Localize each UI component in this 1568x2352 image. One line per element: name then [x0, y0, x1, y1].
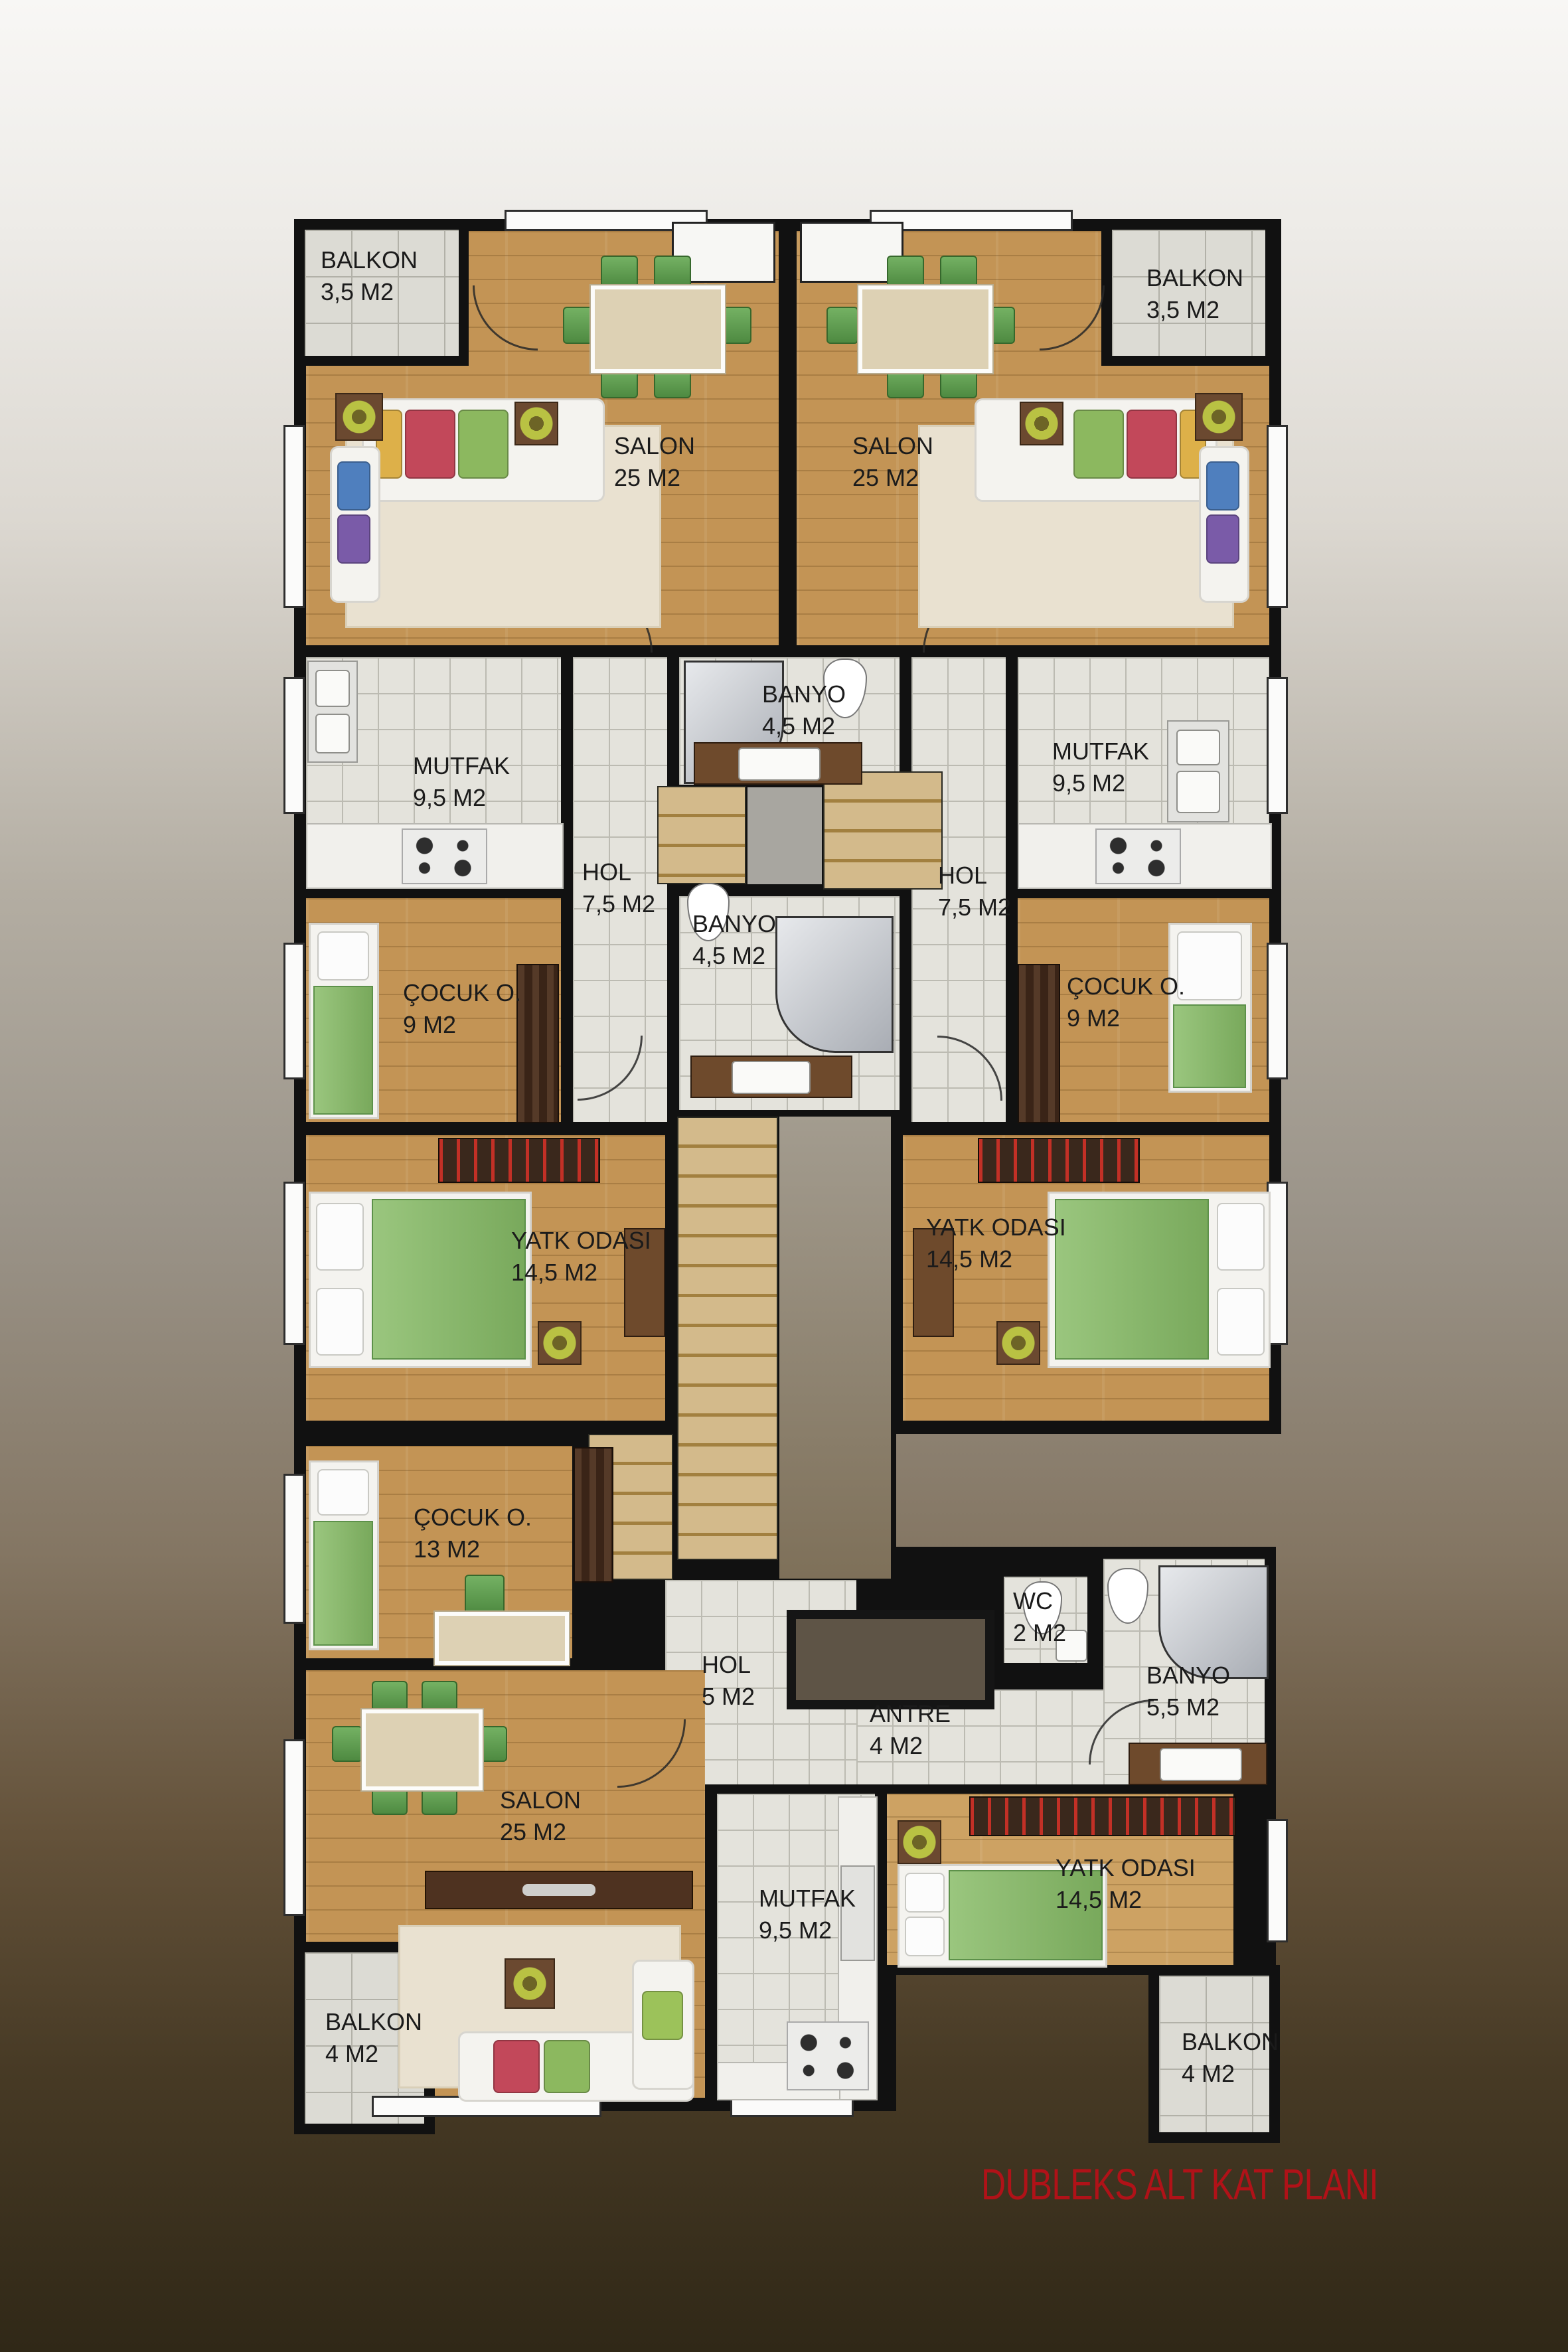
bed-pillow [316, 1288, 364, 1356]
wardrobe [574, 1447, 613, 1583]
room-label-hol-left: HOL 7,5 M2 [582, 856, 655, 919]
room-name: MUTFAK [759, 1883, 856, 1915]
wardrobe [516, 964, 559, 1123]
room-label-antre: ANTRE 4 M2 [870, 1698, 951, 1761]
room-area: 25 M2 [852, 462, 933, 494]
tv-console [425, 1871, 693, 1909]
wardrobe-hangers [438, 1138, 600, 1183]
single-bed [309, 923, 379, 1119]
room-name: ÇOCUK O. [403, 977, 521, 1009]
stove [402, 828, 487, 884]
room-name: BANYO [762, 678, 846, 710]
sofa-cushion [493, 2040, 540, 2093]
room-area: 9 M2 [1067, 1002, 1185, 1034]
room-label-banyo-top: BANYO 4,5 M2 [762, 678, 846, 742]
bed-pillow [1217, 1203, 1265, 1271]
window [283, 1182, 305, 1345]
side-table [1020, 402, 1063, 445]
sofa-cushion [1073, 410, 1124, 479]
room-area: 9,5 M2 [1052, 767, 1149, 799]
side-table [335, 393, 383, 441]
room-name: ÇOCUK O. [1067, 971, 1185, 1002]
dining-chair [563, 307, 595, 344]
room-area: 25 M2 [614, 462, 695, 494]
sofa-cushion [642, 1991, 683, 2040]
room-area: 4,5 M2 [762, 710, 846, 742]
dining-chair [332, 1726, 362, 1762]
sink-basin [1176, 771, 1220, 813]
bed-blanket [313, 1521, 373, 1646]
room-area: 4 M2 [870, 1730, 951, 1762]
room-label-cocuk-left: ÇOCUK O. 9 M2 [403, 977, 521, 1040]
bathroom-vanity [1129, 1743, 1267, 1785]
elevator-shaft [787, 1610, 994, 1709]
wardrobe [1018, 964, 1060, 1123]
double-bed [309, 1192, 532, 1368]
room-area: 4,5 M2 [692, 940, 776, 972]
bed-pillow [905, 1917, 945, 1956]
side-table [514, 402, 558, 445]
sink-basin [1176, 730, 1220, 765]
room-label-salon-top-left: SALON 25 M2 [614, 430, 695, 493]
room-area: 13 M2 [414, 1533, 532, 1565]
sofa-cushion [1206, 514, 1239, 564]
stove [787, 2021, 869, 2090]
room-name: SALON [614, 430, 695, 462]
room-name: ANTRE [870, 1698, 951, 1730]
room-label-banyo-55: BANYO 5,5 M2 [1146, 1660, 1230, 1723]
side-table [505, 1958, 555, 2009]
sofa-cushion [1206, 461, 1239, 510]
window [1267, 677, 1288, 814]
nightstand [996, 1321, 1040, 1365]
shower [775, 916, 894, 1053]
main-staircase [677, 1117, 778, 1560]
room-area: 3,5 M2 [1146, 294, 1243, 326]
dining-table [858, 285, 992, 373]
dining-chair [422, 1681, 457, 1711]
stair-landing [747, 787, 822, 884]
room-label-hol-5: HOL 5 M2 [702, 1649, 755, 1712]
room-name: ÇOCUK O. [414, 1502, 532, 1533]
sofa-cushion [405, 410, 455, 479]
sofa [975, 398, 1217, 502]
room-label-banyo-mid: BANYO 4,5 M2 [692, 908, 776, 971]
sofa-cushion [337, 461, 370, 510]
bathroom-vanity [690, 1056, 852, 1098]
room-label-balkon-bottom-left: BALKON 4 M2 [325, 2006, 422, 2069]
sofa-cushion [544, 2040, 590, 2093]
room-area: 5 M2 [702, 1681, 755, 1713]
room-area: 7,5 M2 [938, 892, 1011, 923]
sink-basin [738, 747, 821, 781]
nightstand [898, 1820, 941, 1864]
bed-blanket [313, 986, 373, 1115]
floor-plan-page: { "title": {"text": "DUBLEKS ALT KAT PLA… [0, 0, 1568, 2352]
room-area: 9,5 M2 [413, 782, 510, 814]
bed-blanket [1055, 1199, 1209, 1360]
room-label-cocuk-right: ÇOCUK O. 9 M2 [1067, 971, 1185, 1034]
bed-pillow [1217, 1288, 1265, 1356]
dining-table [362, 1709, 483, 1790]
upper-stair-right [823, 771, 943, 890]
room-label-mutfak-bottom: MUTFAK 9,5 M2 [759, 1883, 856, 1946]
sofa-cushion [337, 514, 370, 564]
room-area: 7,5 M2 [582, 888, 655, 920]
room-name: BALKON [1182, 2026, 1279, 2058]
tv-set [522, 1884, 595, 1896]
window [1267, 943, 1288, 1079]
room-label-balkon-bottom-right: BALKON 4 M2 [1182, 2026, 1279, 2089]
room-label-wc: WC 2 M2 [1013, 1585, 1066, 1648]
room-name: MUTFAK [1052, 736, 1149, 767]
room-label-yatak-left: YATK ODASI 14,5 M2 [511, 1225, 651, 1288]
window [1267, 1819, 1288, 1942]
room-name: SALON [500, 1784, 581, 1816]
room-name: MUTFAK [413, 750, 510, 782]
stove [1095, 828, 1181, 884]
room-name: BALKON [325, 2006, 422, 2038]
window [283, 1474, 305, 1624]
room-label-mutfak-left: MUTFAK 9,5 M2 [413, 750, 510, 813]
sofa [362, 398, 605, 502]
stair-void [779, 1117, 891, 1579]
dining-chair [887, 256, 924, 287]
sofa-cushion [1127, 410, 1177, 479]
wardrobe-hangers [969, 1796, 1236, 1836]
bed-pillow [317, 1469, 369, 1516]
room-area: 3,5 M2 [321, 276, 418, 308]
upper-stair-left [657, 786, 746, 884]
room-label-hol-right: HOL 7,5 M2 [938, 860, 1011, 923]
room-area: 2 M2 [1013, 1617, 1066, 1649]
room-name: HOL [702, 1649, 755, 1681]
window [1267, 425, 1288, 608]
dining-chair [372, 1681, 408, 1711]
plan-title: DUBLEKS ALT KAT PLANI [981, 2159, 1378, 2209]
kitchen-sink [307, 661, 358, 763]
window [283, 943, 305, 1079]
room-label-yatak-right: YATK ODASI 14,5 M2 [926, 1212, 1066, 1275]
room-name: WC [1013, 1585, 1066, 1617]
desk [435, 1612, 569, 1665]
window [283, 677, 305, 814]
bed-blanket [372, 1199, 526, 1360]
room-area: 14,5 M2 [1056, 1884, 1196, 1916]
room-area: 9 M2 [403, 1009, 521, 1041]
sink-basin [315, 714, 350, 753]
dining-table [591, 285, 725, 373]
room-name: BALKON [321, 244, 418, 276]
room-name: BANYO [692, 908, 776, 940]
sofa-cushion [458, 410, 509, 479]
room-label-yatak-bottom: YATK ODASI 14,5 M2 [1056, 1852, 1196, 1915]
room-label-salon-top-right: SALON 25 M2 [852, 430, 933, 493]
room-name: YATK ODASI [1056, 1852, 1196, 1884]
room-label-mutfak-right: MUTFAK 9,5 M2 [1052, 736, 1149, 799]
single-bed [309, 1460, 379, 1650]
nightstand [538, 1321, 582, 1365]
room-name: BANYO [1146, 1660, 1230, 1691]
room-area: 14,5 M2 [926, 1243, 1066, 1275]
room-area: 4 M2 [1182, 2058, 1279, 2090]
bed-pillow [317, 931, 369, 980]
room-area: 9,5 M2 [759, 1915, 856, 1946]
dining-chair [601, 256, 638, 287]
sink-basin [1160, 1748, 1242, 1781]
room-area: 5,5 M2 [1146, 1691, 1230, 1723]
window [283, 1739, 305, 1916]
sofa [330, 446, 380, 603]
bed-pillow [905, 1873, 945, 1913]
room-label-cocuk-13: ÇOCUK O. 13 M2 [414, 1502, 532, 1565]
double-bed [1048, 1192, 1271, 1368]
dining-chair [654, 256, 691, 287]
desk-chair [465, 1575, 505, 1614]
sink-basin [315, 670, 350, 707]
room-label-balkon-top-left: BALKON 3,5 M2 [321, 244, 418, 307]
room-area: 25 M2 [500, 1816, 581, 1848]
room-name: YATK ODASI [511, 1225, 651, 1257]
room-name: HOL [938, 860, 1011, 892]
armchair [632, 1960, 694, 2090]
bathroom-vanity [694, 742, 862, 785]
kitchen-sink [1167, 720, 1229, 823]
bed-pillow [1177, 931, 1242, 1000]
room-name: YATK ODASI [926, 1212, 1066, 1243]
bed-pillow [316, 1203, 364, 1271]
window [283, 425, 305, 608]
sofa [1199, 446, 1249, 603]
side-table [1195, 393, 1243, 441]
room-name: HOL [582, 856, 655, 888]
room-label-balkon-top-right: BALKON 3,5 M2 [1146, 262, 1243, 325]
dining-chair [940, 256, 977, 287]
dining-chair [826, 307, 858, 344]
room-name: BALKON [1146, 262, 1243, 294]
room-area: 4 M2 [325, 2038, 422, 2070]
sink-basin [732, 1061, 811, 1094]
room-area: 14,5 M2 [511, 1257, 651, 1289]
wardrobe-hangers [978, 1138, 1140, 1183]
room-label-salon-bottom: SALON 25 M2 [500, 1784, 581, 1847]
room-name: SALON [852, 430, 933, 462]
